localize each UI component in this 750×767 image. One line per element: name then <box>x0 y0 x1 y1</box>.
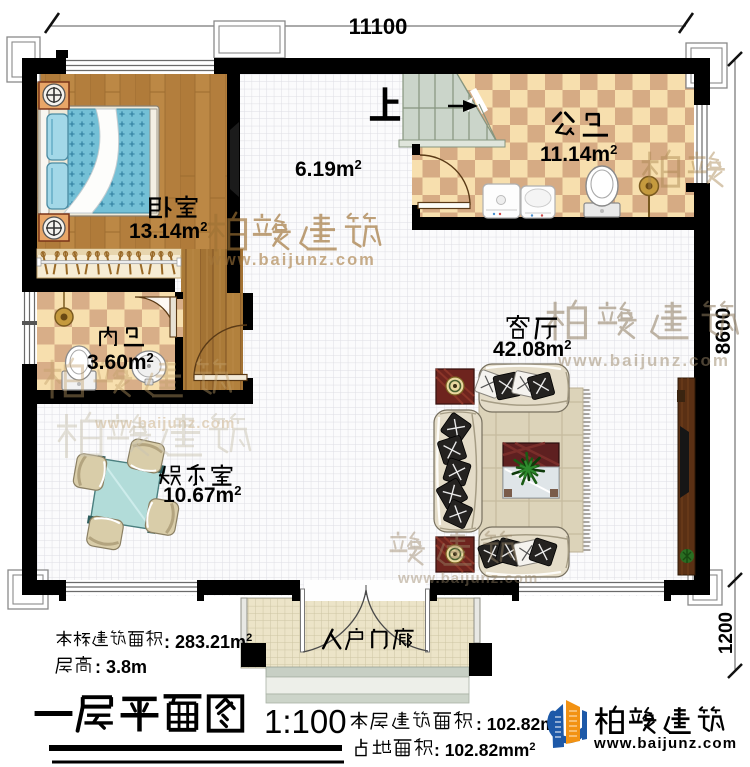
svg-text:11100: 11100 <box>349 14 408 39</box>
svg-text:3.60m2: 3.60m2 <box>87 350 154 374</box>
svg-text:1:100: 1:100 <box>264 703 347 740</box>
svg-text:www.baijunz.com: www.baijunz.com <box>557 351 730 370</box>
svg-text:42.08m2: 42.08m2 <box>493 337 571 361</box>
svg-text:: 3.8m: : 3.8m <box>95 657 147 677</box>
svg-text:: 102.82mm2: : 102.82mm2 <box>434 740 535 760</box>
svg-text:www.baijunz.com: www.baijunz.com <box>593 735 737 752</box>
svg-text:: 283.21m2: : 283.21m2 <box>164 632 252 652</box>
svg-text:10.67m2: 10.67m2 <box>163 483 241 507</box>
svg-text:13.14m2: 13.14m2 <box>129 219 207 243</box>
svg-text:www.baijunz.com: www.baijunz.com <box>207 251 376 269</box>
svg-text:1200: 1200 <box>716 612 737 654</box>
svg-text:11.14m2: 11.14m2 <box>540 142 617 166</box>
svg-text:6.19m2: 6.19m2 <box>295 157 362 181</box>
svg-text:www.baijunz.com: www.baijunz.com <box>397 570 538 587</box>
